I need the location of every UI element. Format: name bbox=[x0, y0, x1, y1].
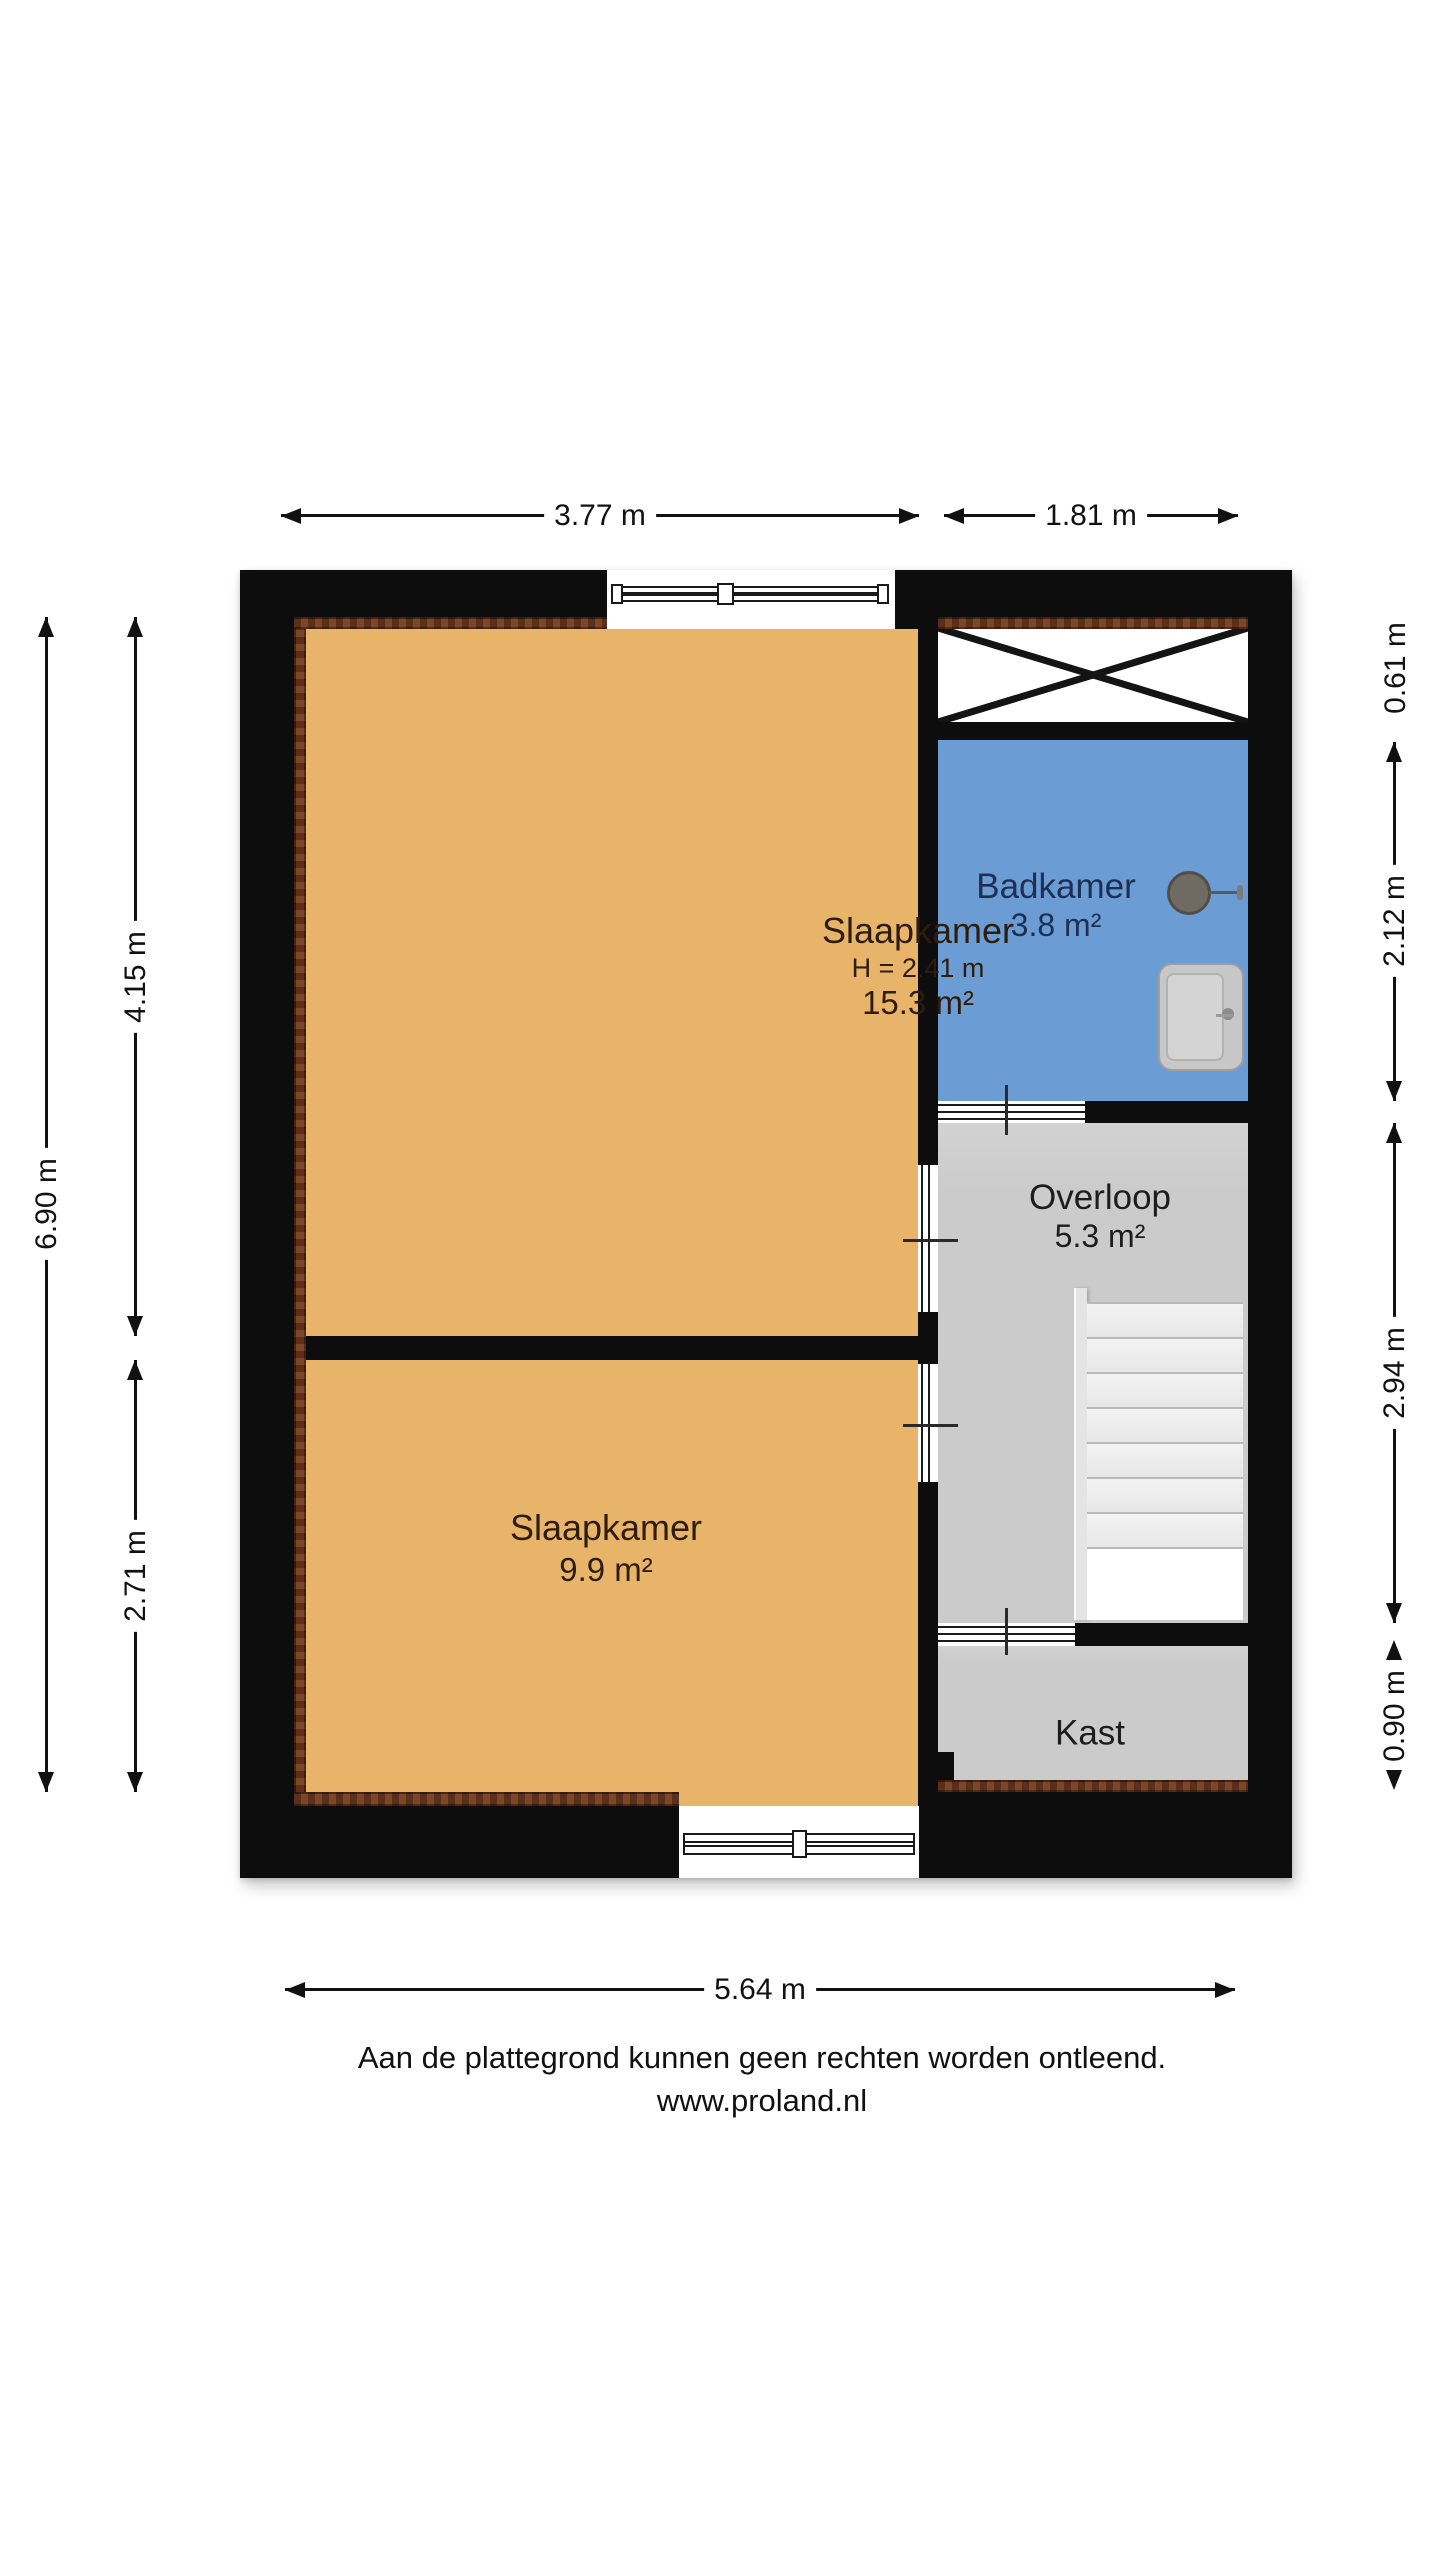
room-name: Slaapkamer bbox=[606, 913, 1230, 949]
arrowhead bbox=[1386, 1081, 1402, 1101]
brick-hatch-left bbox=[294, 617, 306, 1792]
stairs-stringer bbox=[1074, 1288, 1087, 1620]
arrowhead bbox=[1386, 1603, 1402, 1623]
dim-left-inner-2: 2.71 m bbox=[117, 1520, 155, 1632]
arrowhead bbox=[1218, 508, 1238, 524]
door-badkamer-tick bbox=[1005, 1085, 1008, 1135]
arrowhead bbox=[127, 1316, 143, 1336]
room-name: Badkamer bbox=[976, 869, 1136, 904]
disclaimer-text: Aan de plattegrond kunnen geen rechten w… bbox=[358, 2040, 1166, 2076]
dim-right-4: 0.90 m bbox=[1376, 1666, 1414, 1766]
dim-top-1: 3.77 m bbox=[544, 497, 656, 535]
dim-bottom: 5.64 m bbox=[704, 1971, 816, 2009]
arrowhead bbox=[1386, 742, 1402, 762]
brick-hatch-bottom-left bbox=[294, 1792, 679, 1806]
arrowhead bbox=[944, 508, 964, 524]
room-slaapkamer-2-floor-extension bbox=[679, 1792, 918, 1806]
label-badkamer: Badkamer 3.8 m² bbox=[976, 869, 1136, 941]
stair-tread-bottom bbox=[1087, 1547, 1243, 1620]
door-badkamer-leaf bbox=[938, 1104, 1085, 1120]
door-slaapkamer1-tick bbox=[903, 1239, 958, 1242]
arrowhead bbox=[127, 617, 143, 637]
floorplan-page: { "rooms": { "slaapkamer1": { "name": "S… bbox=[0, 0, 1440, 2560]
dim-right-1: 0.61 m bbox=[1377, 612, 1415, 724]
label-overloop: Overloop 5.3 m² bbox=[1029, 1180, 1171, 1252]
room-area: 9.9 m² bbox=[294, 1553, 918, 1586]
floorplan-canvas: Slaapkamer H = 2.41 m 15.3 m² Slaapkamer… bbox=[240, 570, 1292, 1878]
arrowhead bbox=[1386, 1770, 1402, 1790]
dim-left-outer: 6.90 m bbox=[28, 1148, 66, 1260]
room-area: 5.3 m² bbox=[1029, 1220, 1171, 1252]
arrowhead bbox=[1386, 1123, 1402, 1143]
room-ceiling-height: H = 2.41 m bbox=[606, 955, 1230, 982]
stair-tread bbox=[1087, 1477, 1243, 1512]
low-headroom-area bbox=[938, 628, 1248, 722]
arrowhead bbox=[38, 617, 54, 637]
room-name: Slaapkamer bbox=[294, 1510, 918, 1546]
brick-hatch-top-right bbox=[938, 617, 1248, 629]
room-area: 3.8 m² bbox=[976, 909, 1136, 941]
arrowhead bbox=[285, 1982, 305, 1998]
sink-faucet-icon bbox=[1209, 891, 1240, 894]
window-top-mullion bbox=[717, 583, 734, 605]
room-name: Overloop bbox=[1029, 1180, 1171, 1215]
staircase bbox=[1087, 1302, 1243, 1620]
arrowhead bbox=[281, 508, 301, 524]
arrowhead bbox=[38, 1772, 54, 1792]
stair-tread bbox=[1087, 1442, 1243, 1477]
label-slaapkamer-2: Slaapkamer 9.9 m² bbox=[294, 1510, 918, 1586]
dim-left-inner-1: 4.15 m bbox=[117, 921, 155, 1033]
sink-wall-mount-icon bbox=[1237, 885, 1243, 900]
arrowhead bbox=[1215, 1982, 1235, 1998]
website-text: www.proland.nl bbox=[657, 2083, 867, 2119]
label-kast: Kast bbox=[1055, 1716, 1125, 1751]
arrowhead bbox=[127, 1772, 143, 1792]
window-bottom-mullion bbox=[792, 1830, 807, 1858]
brick-hatch-kast-bottom bbox=[938, 1780, 1248, 1792]
stair-tread bbox=[1087, 1302, 1243, 1337]
dim-right-2: 2.12 m bbox=[1376, 865, 1414, 977]
stair-tread bbox=[1087, 1512, 1243, 1547]
arrowhead bbox=[127, 1360, 143, 1380]
sink-icon bbox=[1167, 871, 1211, 915]
arrowhead bbox=[1386, 1640, 1402, 1660]
label-slaapkamer-1: Slaapkamer H = 2.41 m 15.3 m² bbox=[606, 913, 1230, 1019]
door-slaapkamer2-leaf bbox=[921, 1364, 935, 1482]
window-top-frame bbox=[611, 586, 889, 602]
door-slaapkamer2-tick bbox=[903, 1424, 958, 1427]
room-area: 15.3 m² bbox=[606, 986, 1230, 1019]
arrowhead bbox=[899, 508, 919, 524]
dim-top-2: 1.81 m bbox=[1035, 497, 1147, 535]
stair-tread bbox=[1087, 1337, 1243, 1372]
stair-tread bbox=[1087, 1372, 1243, 1407]
low-headroom-cross-icon bbox=[938, 628, 1248, 722]
window-top-cap-right bbox=[877, 584, 889, 604]
wall-stub-top bbox=[895, 617, 938, 629]
brick-hatch-top-left bbox=[294, 617, 607, 629]
wall-notch-kast bbox=[938, 1752, 954, 1780]
window-top-cap-left bbox=[611, 584, 623, 604]
door-kast-tick bbox=[1005, 1608, 1008, 1655]
room-name: Kast bbox=[1055, 1716, 1125, 1751]
dim-right-3: 2.94 m bbox=[1376, 1317, 1414, 1429]
stair-tread bbox=[1087, 1407, 1243, 1442]
